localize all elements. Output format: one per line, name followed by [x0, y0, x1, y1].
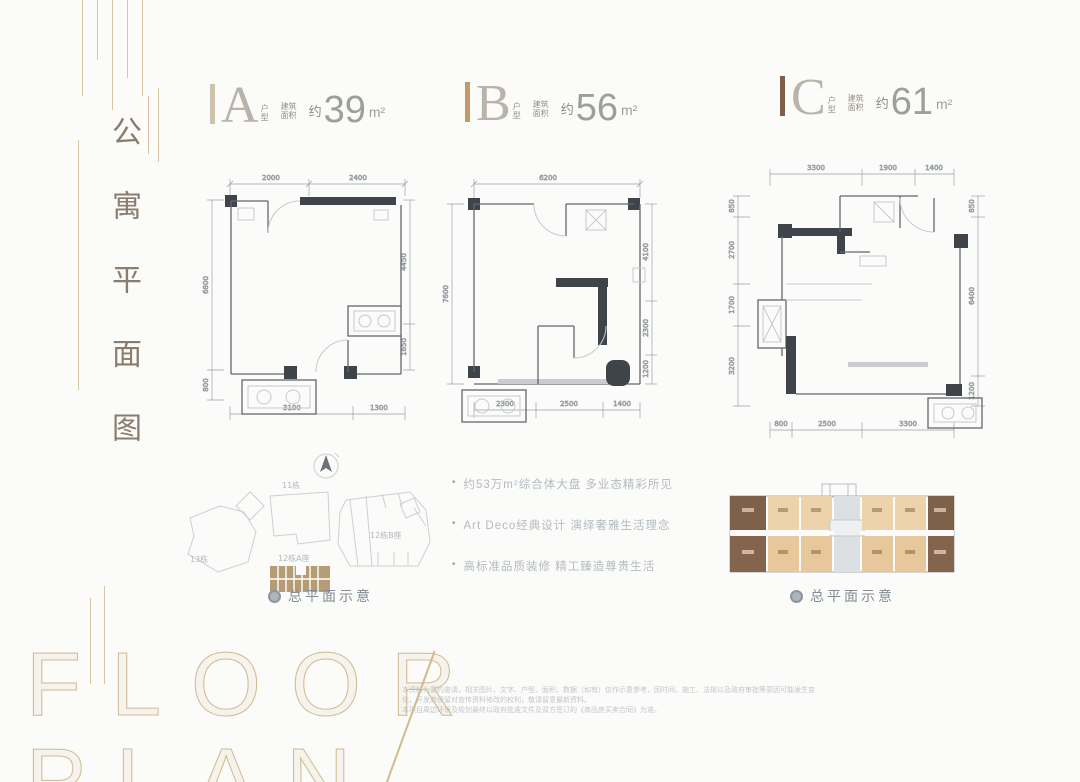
svg-text:6200: 6200 [539, 174, 557, 182]
svg-text:4100: 4100 [642, 243, 650, 261]
ac-platform [348, 306, 401, 336]
site-plan: 11栋 12栋A座 12栋B座 13栋 [178, 448, 440, 608]
bullet-icon: • [452, 517, 457, 531]
plan-a-dimensions: 2000 2400 6800 800 4450 1650 3100 1300 [202, 174, 415, 420]
watermark-plan: PLAN [26, 736, 381, 782]
door-arc [900, 198, 934, 232]
building-11-outline [270, 492, 330, 544]
bullet-icon: • [452, 558, 457, 572]
svg-text:800: 800 [774, 420, 787, 428]
ac-platform [462, 390, 526, 422]
svg-text:1400: 1400 [613, 400, 631, 408]
deco-line [148, 96, 149, 154]
svg-text:1700: 1700 [728, 296, 736, 314]
plan-b-drawing: 6200 7600 4100 2300 1200 2300 2500 1400 [438, 148, 660, 430]
svg-text:2300: 2300 [642, 319, 650, 337]
svg-text:3200: 3200 [728, 357, 736, 375]
svg-text:3300: 3300 [899, 420, 917, 428]
deco-line [78, 140, 79, 390]
site-plan-caption: 总平面示意 [268, 586, 373, 606]
plan-b-area-label: 建筑 面积 [533, 100, 549, 118]
plan-a-drawing: 2000 2400 6800 800 4450 1650 3100 1300 [198, 148, 416, 430]
feature-item: • 约53万m²综合体大盘 多业态精彩所见 [452, 476, 692, 492]
plan-a-area-unit: m² [369, 104, 385, 120]
plan-a-accent-bar [210, 84, 215, 124]
plan-a-area-value: 39 [324, 94, 366, 126]
svg-text:2500: 2500 [560, 400, 578, 408]
caption-dot-icon [790, 590, 803, 603]
plan-b-walls [462, 198, 645, 422]
plan-b-approx: 约 [561, 99, 574, 118]
plan-a-letter: A [221, 84, 259, 128]
svg-text:800: 800 [202, 378, 210, 391]
building-12b-wing [400, 498, 420, 518]
plan-a-header: A 户 型 建筑 面积 约 39 m² [210, 84, 385, 128]
deco-line [97, 0, 98, 60]
plan-a-approx: 约 [309, 101, 322, 120]
svg-text:7600: 7600 [442, 285, 450, 303]
plan-a-area-label: 建筑 面积 [281, 102, 297, 120]
door-arc [534, 204, 566, 236]
plan-b-area-value: 56 [576, 92, 618, 124]
plan-b-type-label: 户 型 [513, 102, 521, 120]
key-plan [722, 480, 962, 580]
door-arc [316, 340, 348, 372]
deco-line [158, 88, 159, 162]
caption-dot-icon [268, 590, 281, 603]
svg-text:1200: 1200 [968, 382, 976, 400]
svg-text:850: 850 [728, 199, 736, 212]
key-plan-caption: 总平面示意 [790, 586, 895, 606]
key-plan-units [730, 496, 954, 572]
label-building-11: 11栋 [282, 480, 300, 490]
svg-text:6800: 6800 [202, 276, 210, 294]
floorplan-poster: 公寓平面图 A 户 型 建筑 面积 约 39 m² B 户 型 建筑 面积 约 … [0, 0, 1080, 782]
ac-platform [242, 380, 316, 414]
plan-c-letter: C [791, 76, 826, 120]
plan-c-area-value: 61 [891, 86, 933, 118]
bullet-icon: • [452, 476, 457, 490]
label-building-12a: 12栋A座 [278, 553, 310, 563]
plan-c-type-label: 户 型 [828, 96, 836, 114]
plan-b-letter: B [476, 82, 511, 126]
door-arc [268, 201, 300, 233]
feature-list: • 约53万m²综合体大盘 多业态精彩所见 • Art Deco经典设计 演绎奢… [452, 476, 692, 599]
plan-c-walls [758, 196, 982, 428]
ac-platform [928, 398, 982, 428]
shaft [586, 210, 606, 230]
feature-item: • Art Deco经典设计 演绎奢雅生活理念 [452, 517, 692, 533]
svg-text:2000: 2000 [262, 174, 280, 182]
plan-b-accent-bar [465, 82, 470, 122]
plan-c-header: C 户 型 建筑 面积 约 61 m² [780, 76, 952, 120]
deco-line [127, 0, 128, 78]
svg-text:3300: 3300 [807, 164, 825, 172]
svg-text:1400: 1400 [925, 164, 943, 172]
svg-text:2300: 2300 [496, 400, 514, 408]
plan-c-drawing: 3300 1900 1400 850 2700 1700 3200 850 64… [722, 140, 992, 450]
plan-a-type-label: 户 型 [261, 104, 269, 122]
building-diamond [236, 492, 264, 520]
svg-text:1300: 1300 [370, 404, 388, 412]
plan-c-dimensions: 3300 1900 1400 850 2700 1700 3200 850 64… [728, 164, 985, 438]
svg-text:2400: 2400 [349, 174, 367, 182]
plan-c-approx: 约 [876, 93, 889, 112]
plan-a-walls [225, 195, 401, 414]
svg-text:2700: 2700 [728, 241, 736, 259]
svg-text:2500: 2500 [818, 420, 836, 428]
watermark-floor: FLOOR [26, 640, 486, 730]
deco-line [112, 0, 113, 110]
label-building-13: 13栋 [190, 554, 208, 564]
feature-item: • 高标准品质装修 精工臻造尊贵生活 [452, 558, 692, 574]
plan-c-accent-bar [780, 76, 785, 116]
svg-text:1200: 1200 [642, 360, 650, 378]
deco-line [82, 0, 83, 96]
plan-c-area-label: 建筑 面积 [848, 94, 864, 112]
elevator [758, 300, 786, 348]
label-building-12b: 12栋B座 [370, 530, 402, 540]
plan-b-area-unit: m² [621, 102, 637, 118]
svg-text:850: 850 [968, 199, 976, 212]
page-title-vertical: 公寓平面图 [101, 116, 145, 486]
plan-c-area-unit: m² [936, 96, 952, 112]
plan-b-header: B 户 型 建筑 面积 约 56 m² [465, 82, 637, 126]
svg-text:6400: 6400 [968, 287, 976, 305]
svg-text:1900: 1900 [879, 164, 897, 172]
compass-icon [314, 453, 339, 478]
deco-line [142, 0, 143, 96]
